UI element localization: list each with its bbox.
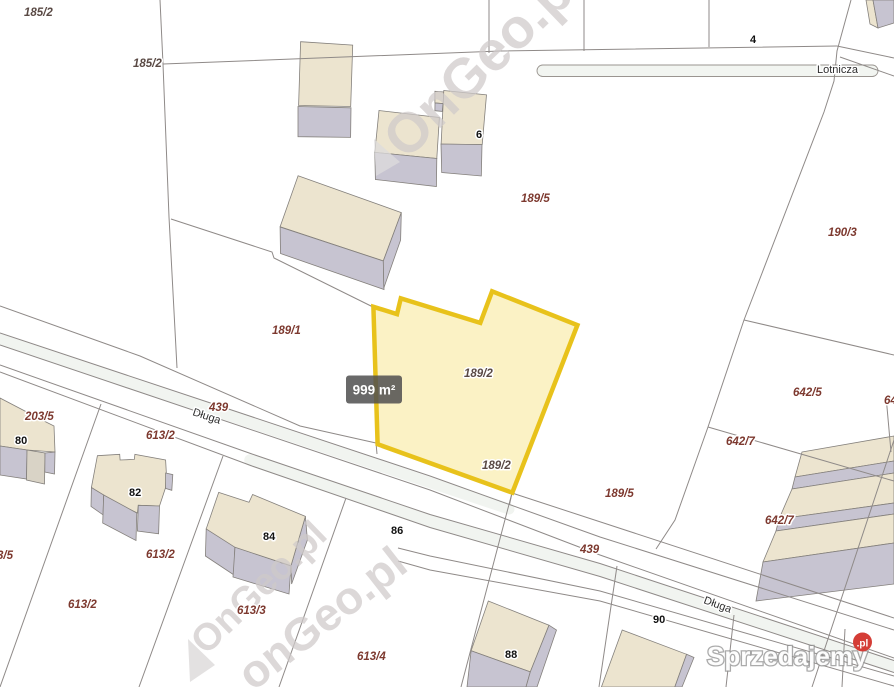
svg-text:Sprzedajemy: Sprzedajemy <box>707 641 868 671</box>
svg-text:439: 439 <box>579 544 600 556</box>
svg-text:613/2: 613/2 <box>146 430 175 442</box>
svg-text:3/5: 3/5 <box>0 550 14 562</box>
svg-text:90: 90 <box>653 614 665 626</box>
svg-text:88: 88 <box>505 649 517 661</box>
svg-text:80: 80 <box>15 435 27 447</box>
svg-text:613/2: 613/2 <box>146 549 175 561</box>
svg-text:82: 82 <box>129 487 141 499</box>
svg-text:642/7: 642/7 <box>765 515 794 527</box>
svg-text:189/2: 189/2 <box>482 460 511 472</box>
svg-text:86: 86 <box>391 525 403 537</box>
svg-text:4: 4 <box>750 34 757 46</box>
svg-text:613/3: 613/3 <box>237 605 266 617</box>
svg-text:189/5: 189/5 <box>605 488 634 500</box>
svg-text:189/5: 189/5 <box>521 193 550 205</box>
svg-text:64: 64 <box>884 395 894 407</box>
svg-text:185/2: 185/2 <box>133 58 162 70</box>
svg-text:189/2: 189/2 <box>464 368 493 380</box>
svg-text:999 m²: 999 m² <box>353 383 396 398</box>
svg-text:.pl: .pl <box>857 639 869 650</box>
svg-text:642/5: 642/5 <box>793 387 822 399</box>
svg-text:6: 6 <box>476 129 482 141</box>
svg-text:84: 84 <box>263 531 276 543</box>
svg-text:Lotnicza: Lotnicza <box>817 64 859 76</box>
svg-text:190/3: 190/3 <box>828 227 857 239</box>
svg-text:203/5: 203/5 <box>24 411 54 423</box>
svg-text:642/7: 642/7 <box>726 436 755 448</box>
svg-text:613/2: 613/2 <box>68 599 97 611</box>
svg-text:185/2: 185/2 <box>24 7 53 19</box>
svg-text:189/1: 189/1 <box>272 325 301 337</box>
svg-text:613/4: 613/4 <box>357 651 386 663</box>
